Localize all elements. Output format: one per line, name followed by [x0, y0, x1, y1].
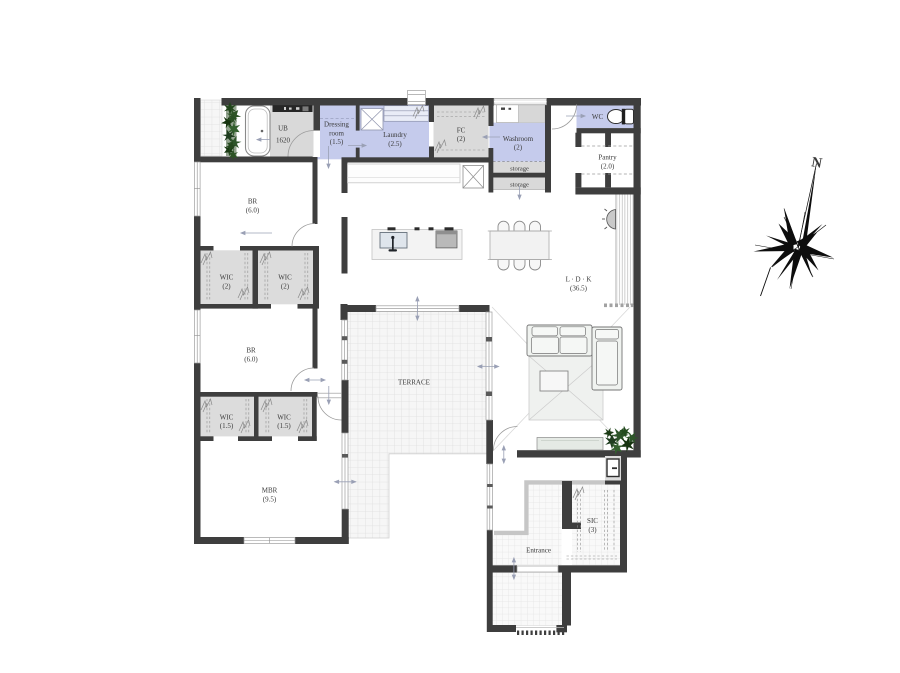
svg-text:Pantry: Pantry [598, 154, 617, 162]
svg-text:(2.0): (2.0) [601, 163, 615, 171]
svg-text:WIC: WIC [220, 414, 234, 422]
svg-text:room: room [329, 130, 344, 138]
svg-text:(2): (2) [514, 144, 523, 152]
svg-text:(2): (2) [457, 135, 466, 143]
svg-text:UB: UB [278, 125, 288, 133]
svg-text:(1.5): (1.5) [220, 422, 234, 430]
svg-text:SIC: SIC [587, 517, 598, 525]
svg-text:FC: FC [457, 127, 466, 135]
svg-text:1620: 1620 [276, 137, 291, 145]
svg-text:Laundry: Laundry [383, 131, 407, 139]
svg-text:Entrance: Entrance [526, 547, 551, 555]
svg-text:WC: WC [592, 113, 604, 121]
svg-text:(6.0): (6.0) [244, 356, 258, 364]
svg-text:(6.0): (6.0) [246, 207, 260, 215]
svg-text:(36.5): (36.5) [570, 285, 588, 293]
svg-text:WIC: WIC [220, 274, 234, 282]
svg-text:WIC: WIC [278, 274, 292, 282]
svg-text:MBR: MBR [262, 487, 278, 495]
svg-text:storage: storage [510, 166, 529, 173]
svg-text:(1.5): (1.5) [277, 422, 291, 430]
svg-text:Dressing: Dressing [324, 121, 349, 129]
svg-text:(2.5): (2.5) [388, 140, 402, 148]
svg-text:BR: BR [248, 198, 258, 206]
svg-text:WIC: WIC [277, 414, 291, 422]
svg-text:(9.5): (9.5) [263, 496, 277, 504]
svg-text:BR: BR [246, 347, 256, 355]
svg-text:L · D · K: L · D · K [566, 276, 592, 284]
svg-text:(2): (2) [281, 283, 290, 291]
svg-text:storage: storage [510, 182, 529, 189]
svg-text:(1.5): (1.5) [330, 138, 344, 146]
svg-text:Washroom: Washroom [503, 135, 534, 143]
svg-text:(3): (3) [588, 526, 597, 534]
svg-text:(2): (2) [222, 283, 231, 291]
svg-text:TERRACE: TERRACE [398, 379, 430, 387]
